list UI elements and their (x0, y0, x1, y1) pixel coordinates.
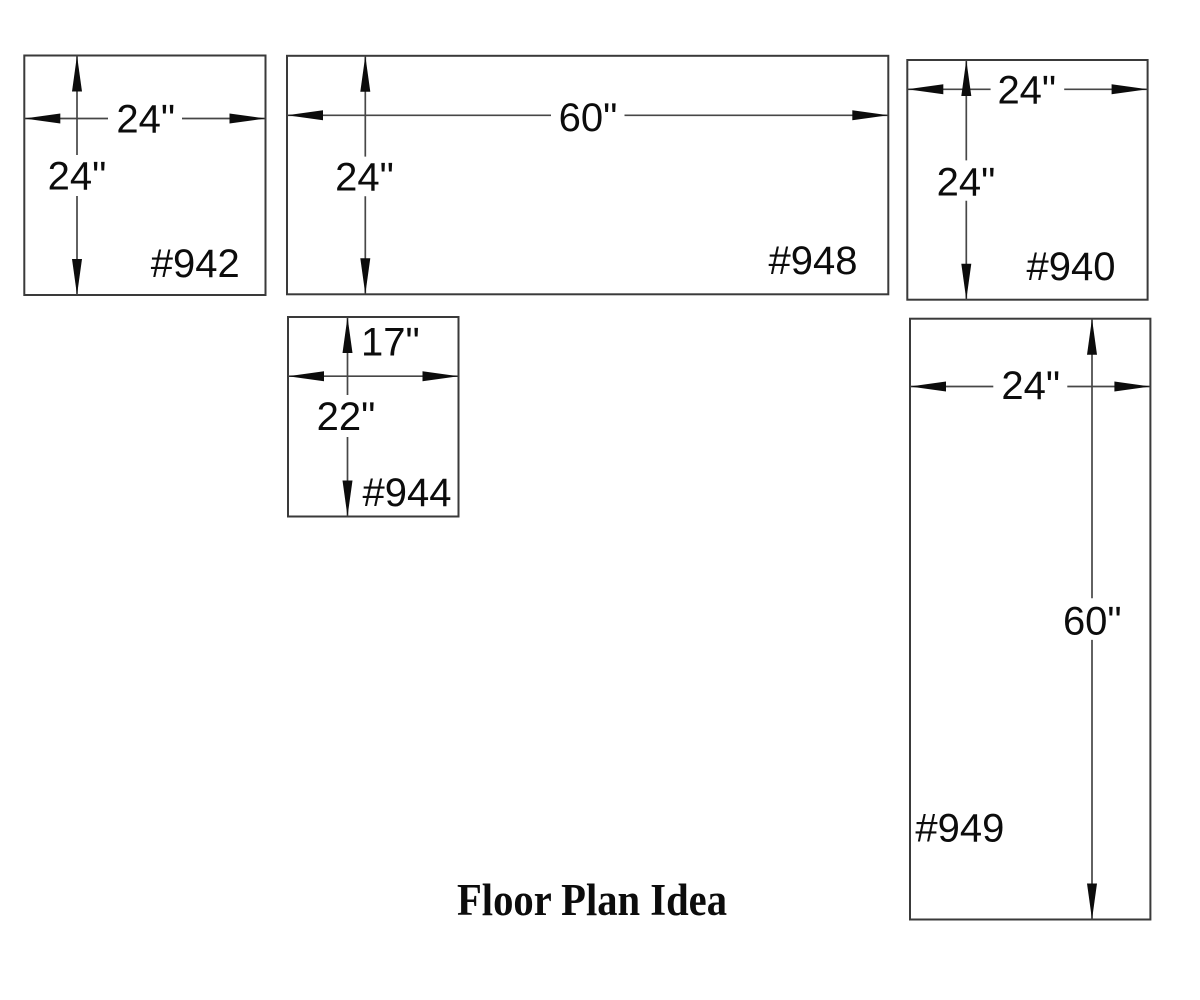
svg-text:Floor Plan Idea: Floor Plan Idea (457, 875, 727, 925)
svg-text:24": 24" (116, 98, 175, 142)
svg-text:24": 24" (335, 155, 394, 199)
svg-text:60": 60" (559, 96, 618, 140)
svg-text:24": 24" (48, 155, 107, 199)
svg-text:17": 17" (361, 321, 420, 365)
svg-text:22": 22" (317, 395, 376, 439)
svg-text:24": 24" (937, 161, 996, 205)
svg-text:24": 24" (997, 69, 1056, 113)
svg-text:60": 60" (1063, 600, 1122, 644)
svg-text:#948: #948 (769, 239, 858, 283)
svg-text:#949: #949 (915, 807, 1004, 851)
svg-text:#942: #942 (151, 242, 240, 286)
svg-text:#940: #940 (1027, 245, 1116, 289)
svg-text:24": 24" (1001, 364, 1060, 408)
svg-text:#944: #944 (363, 471, 452, 515)
